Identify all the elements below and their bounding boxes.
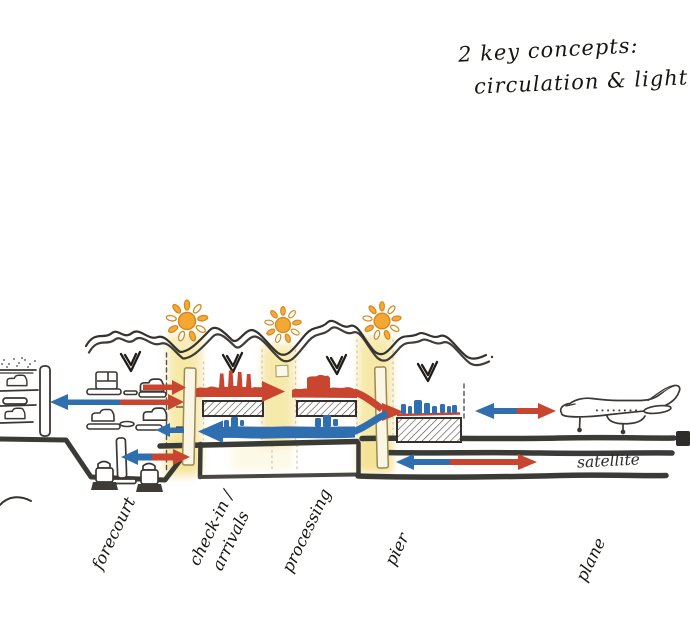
- zone-label-satellite: satellite: [577, 449, 641, 472]
- airplane-icon: [561, 385, 680, 433]
- kerbside-wall: [40, 366, 50, 436]
- bird-icon: [327, 355, 346, 374]
- bird-icon: [418, 362, 437, 381]
- parking-structure: [0, 357, 38, 423]
- bus-station: [91, 438, 163, 492]
- sun-icon: [264, 307, 301, 344]
- sun-icon: [363, 302, 402, 340]
- bird-icon: [223, 353, 242, 372]
- bird-icon: [121, 352, 140, 371]
- concept-sketch-page: 2 key concepts: circulation & light fore…: [0, 0, 690, 619]
- stray-stroke: [0, 497, 31, 505]
- skylight-box: [276, 365, 288, 376]
- gravel-dots: [1, 357, 36, 368]
- pier-passengers: [401, 400, 457, 414]
- satellite-tunnel-arrow: [396, 454, 537, 470]
- apron-shuttle-arrow: [475, 403, 556, 419]
